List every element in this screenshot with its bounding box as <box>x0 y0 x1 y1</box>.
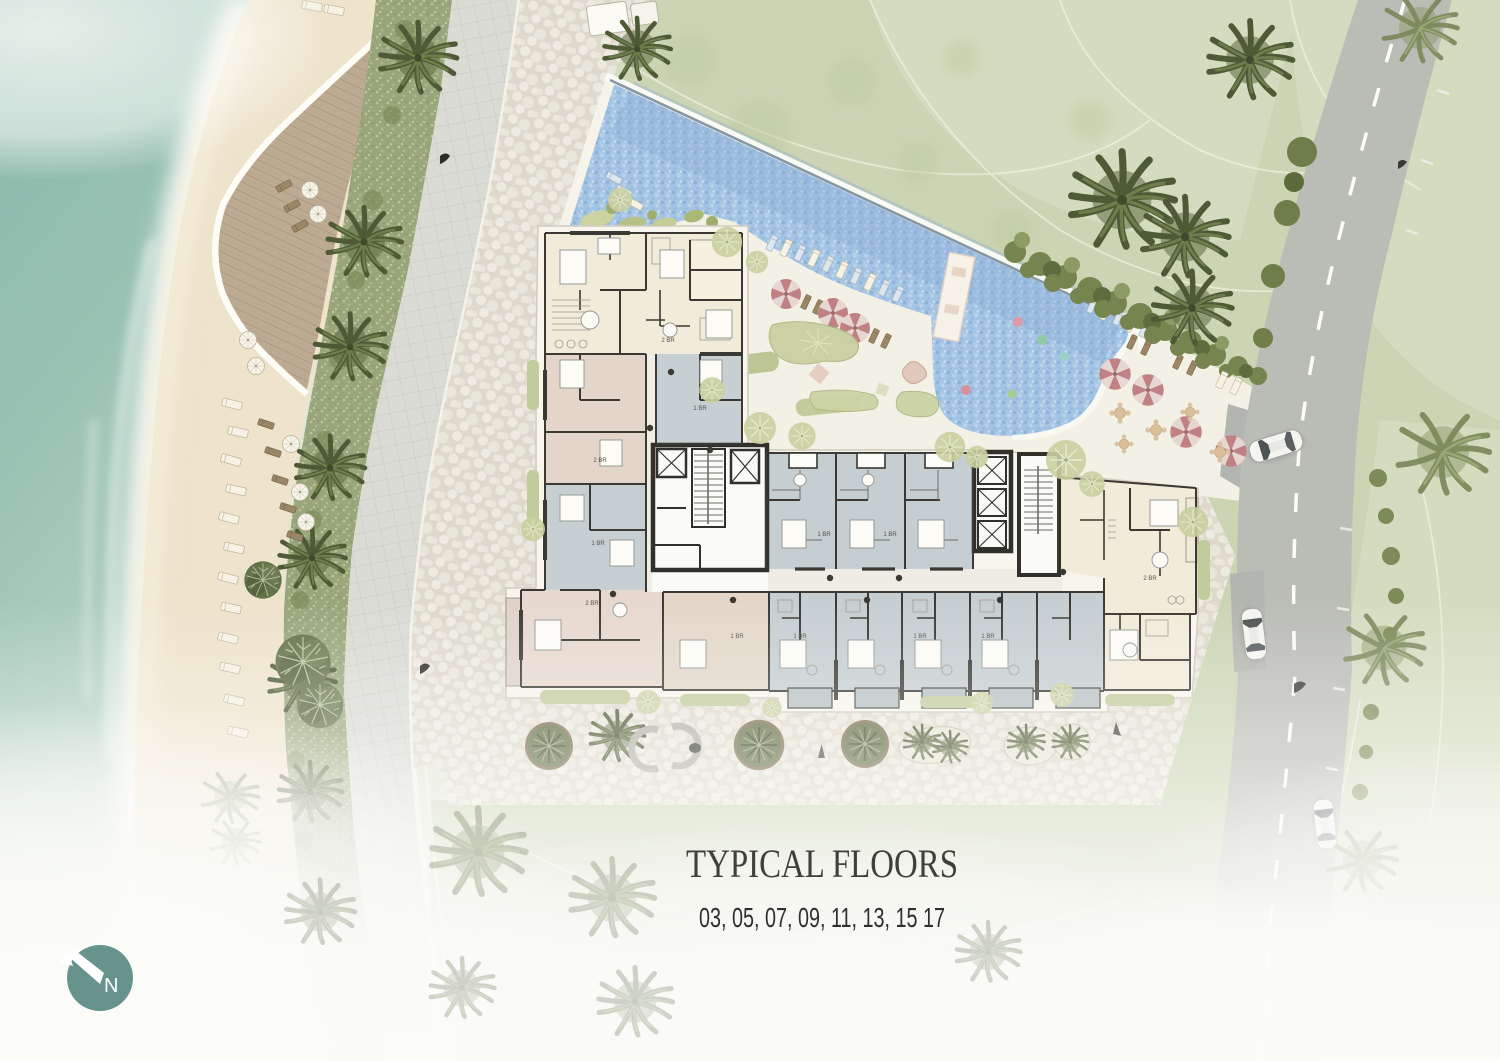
svg-text:2 BR: 2 BR <box>661 338 675 344</box>
svg-text:03, 05, 07, 09, 11, 13, 15 17: 03, 05, 07, 09, 11, 13, 15 17 <box>699 902 945 933</box>
svg-text:TYPICAL FLOORS: TYPICAL FLOORS <box>686 841 958 886</box>
svg-text:1 BR: 1 BR <box>883 532 897 538</box>
svg-text:2 BR: 2 BR <box>1143 576 1157 582</box>
svg-text:N: N <box>104 975 118 997</box>
svg-text:1 BR: 1 BR <box>817 532 831 538</box>
svg-text:1 BR: 1 BR <box>693 406 707 412</box>
svg-text:2 BR: 2 BR <box>593 458 607 464</box>
svg-text:1 BR: 1 BR <box>591 541 605 547</box>
